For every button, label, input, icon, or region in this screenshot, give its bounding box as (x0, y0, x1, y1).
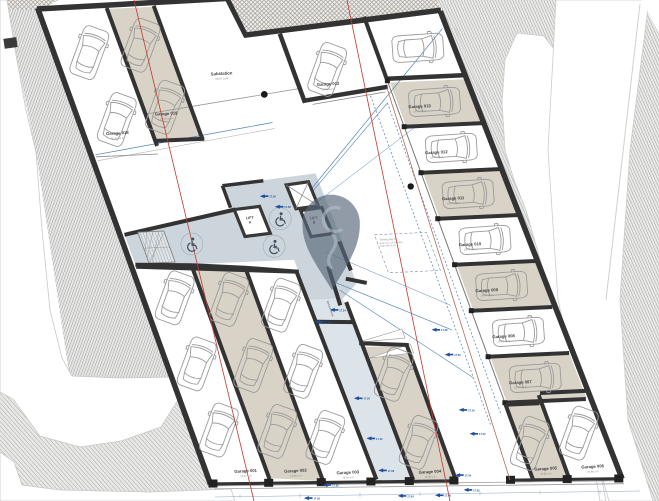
svg-text:19.44 sq m: 19.44 sq m (497, 339, 510, 344)
svg-text:17.20: 17.20 (363, 397, 370, 401)
svg-text:19.44 sq m: 19.44 sq m (430, 155, 443, 160)
svg-text:17.06: 17.06 (332, 484, 339, 488)
svg-text:17.56: 17.56 (284, 205, 291, 209)
svg-text:17.00: 17.00 (445, 494, 452, 498)
svg-text:17.10: 17.10 (479, 432, 486, 436)
svg-text:17.56: 17.56 (269, 195, 276, 199)
svg-text:18.98 s m: 18.98 s m (587, 469, 599, 474)
svg-text:17.34: 17.34 (324, 320, 331, 324)
svg-text:17.04: 17.04 (465, 474, 472, 478)
svg-text:19.44 sq m: 19.44 sq m (413, 109, 426, 114)
svg-text:17.00: 17.00 (407, 494, 414, 498)
svg-text:17.06: 17.06 (388, 469, 395, 473)
svg-text:17.30: 17.30 (454, 353, 461, 357)
svg-text:18.68 s m: 18.68 s m (540, 471, 552, 476)
svg-text:18.67 s m: 18.67 s m (240, 474, 252, 479)
svg-text:19.44 sq m: 19.44 sq m (464, 247, 477, 252)
svg-text:17.34: 17.34 (339, 308, 346, 312)
svg-text:18.08 s m: 18.08 s m (424, 474, 436, 479)
svg-text:17.12: 17.12 (376, 437, 383, 441)
svg-text:19.01 sq m: 19.01 sq m (322, 87, 335, 92)
svg-text:20.42 sq m: 20.42 sq m (111, 136, 124, 141)
svg-text:17.38: 17.38 (441, 328, 448, 332)
svg-text:17.02: 17.02 (313, 497, 320, 501)
svg-text:19.44 sq m: 19.44 sq m (480, 293, 493, 298)
svg-text:18.54 s m: 18.54 s m (342, 475, 354, 480)
svg-text:19.44 sq m: 19.44 sq m (514, 385, 527, 390)
svg-text:17.16: 17.16 (468, 408, 475, 412)
svg-text:17.00: 17.00 (473, 488, 480, 492)
svg-text:19.44 sq m: 19.44 sq m (447, 201, 460, 206)
svg-text:56.16 CuM: 56.16 CuM (215, 76, 228, 81)
svg-text:20.08 sq m: 20.08 sq m (160, 116, 173, 121)
svg-text:21.84 s m: 21.84 s m (290, 473, 302, 478)
